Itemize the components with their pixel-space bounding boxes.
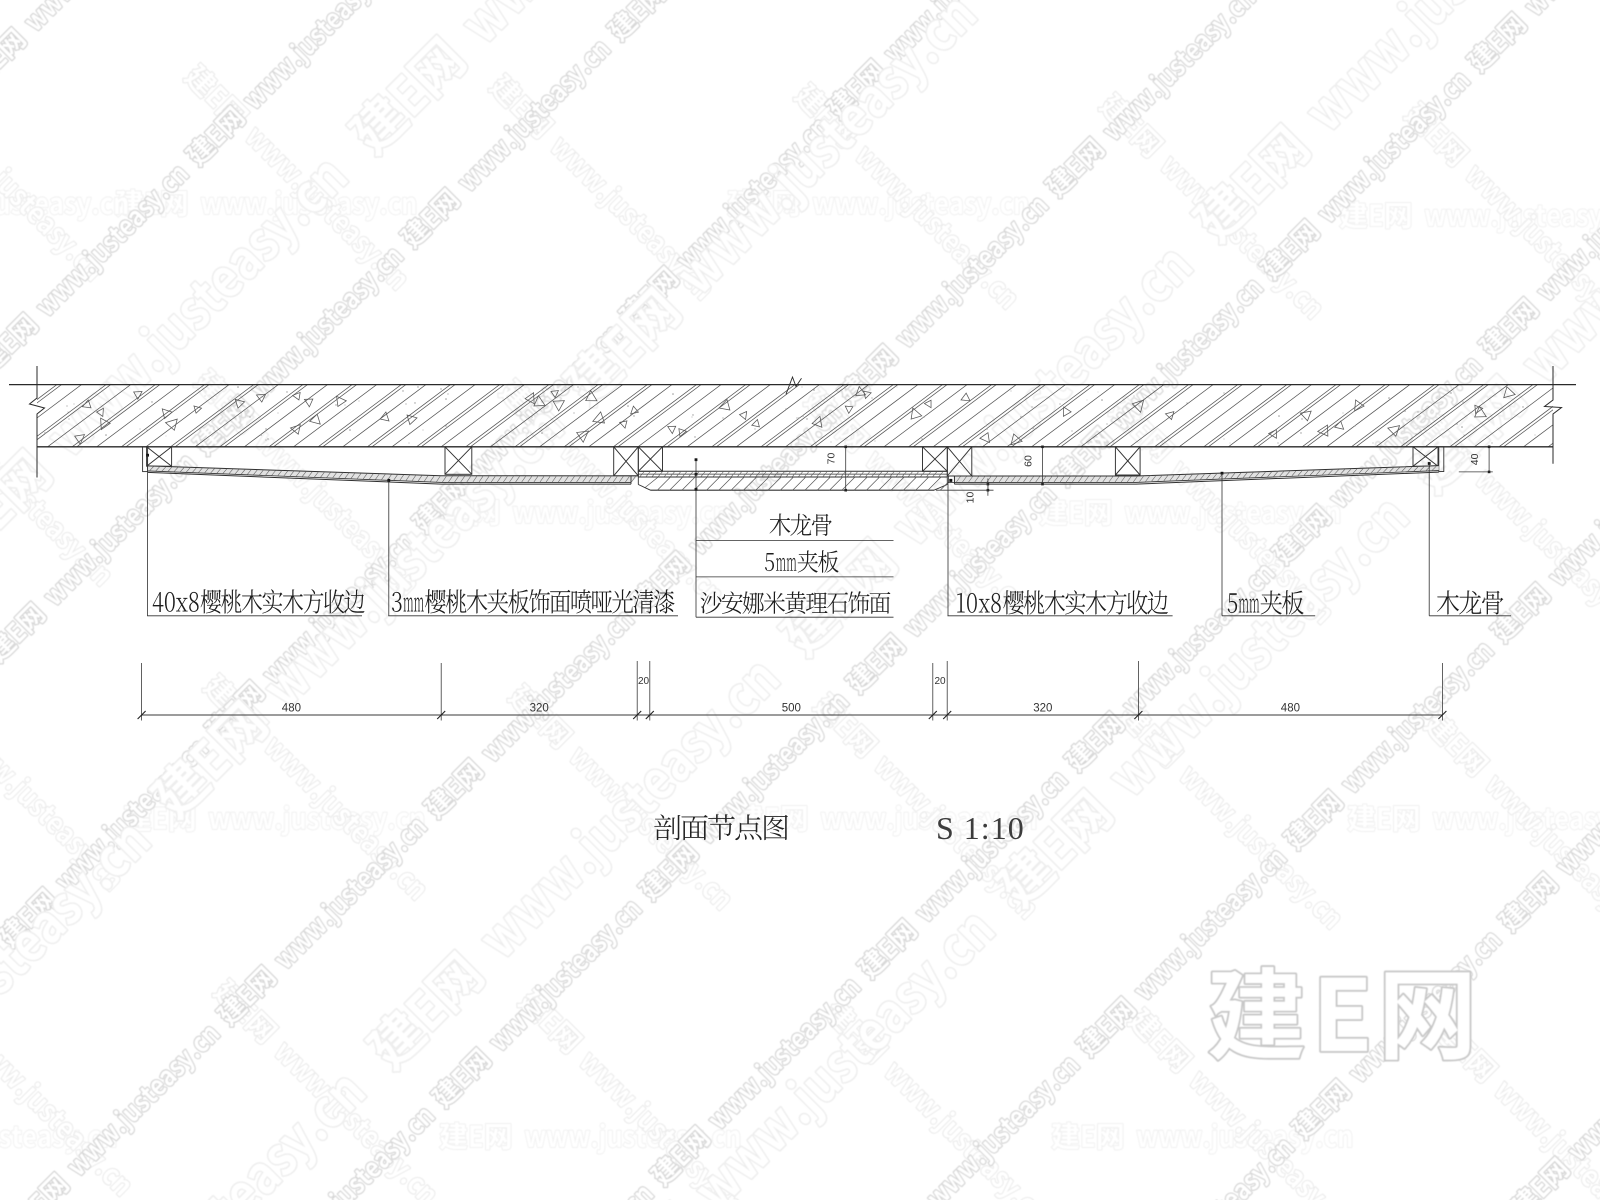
svg-text:60: 60	[1023, 455, 1035, 467]
svg-text:70: 70	[826, 453, 838, 465]
svg-text:480: 480	[1281, 703, 1300, 715]
svg-text:40: 40	[1469, 453, 1481, 465]
svg-text:20: 20	[934, 676, 946, 687]
svg-text:320: 320	[530, 703, 549, 715]
svg-text:500: 500	[782, 703, 801, 715]
svg-text:320: 320	[1033, 703, 1052, 715]
svg-text:10: 10	[965, 492, 977, 504]
svg-text:480: 480	[282, 703, 301, 715]
svg-text:20: 20	[638, 676, 650, 687]
svg-text:S 1:10: S 1:10	[936, 810, 1025, 846]
